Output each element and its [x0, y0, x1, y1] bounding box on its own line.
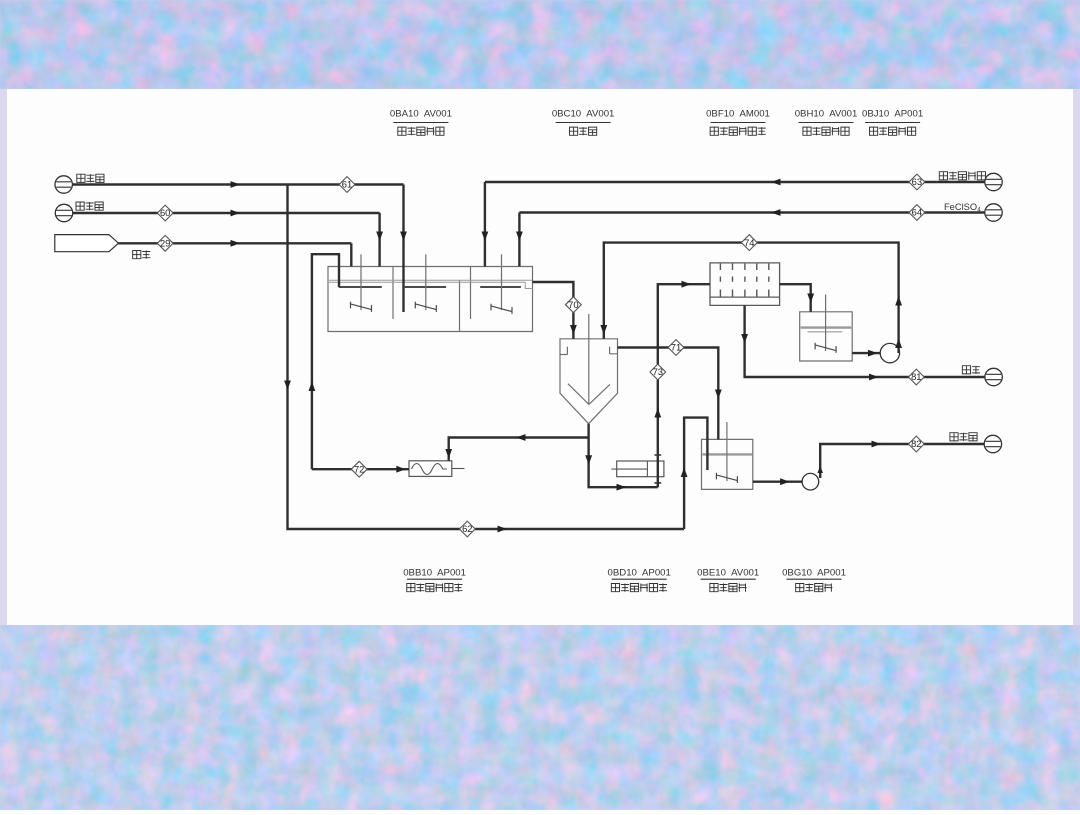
svg-text:62: 62 [462, 523, 472, 534]
svg-text:73: 73 [653, 366, 663, 377]
svg-text:FeClSO4: FeClSO4 [944, 202, 981, 214]
svg-text:60: 60 [160, 207, 170, 218]
svg-text:0BE10 AV001: 0BE10 AV001 [697, 567, 759, 578]
svg-text:64: 64 [912, 207, 922, 218]
svg-text:82: 82 [911, 438, 921, 449]
svg-text:0BJ10 AP001: 0BJ10 AP001 [862, 109, 923, 120]
svg-text:0BC10 AV001: 0BC10 AV001 [552, 109, 615, 120]
svg-text:0BB10 AP001: 0BB10 AP001 [403, 567, 466, 578]
svg-text:0BG10 AP001: 0BG10 AP001 [782, 567, 846, 578]
svg-text:81: 81 [911, 371, 921, 382]
svg-text:0BA10 AV001: 0BA10 AV001 [390, 109, 452, 120]
svg-text:0BF10 AM001: 0BF10 AM001 [706, 109, 770, 120]
svg-text:0BH10 AV001: 0BH10 AV001 [795, 109, 858, 120]
svg-text:63: 63 [912, 176, 922, 187]
svg-text:0BD10 AP001: 0BD10 AP001 [608, 567, 671, 578]
svg-text:70: 70 [568, 299, 578, 310]
svg-text:72: 72 [354, 463, 364, 474]
svg-text:74: 74 [744, 237, 754, 248]
svg-text:71: 71 [671, 342, 681, 353]
svg-text:61: 61 [342, 179, 352, 190]
svg-text:29: 29 [160, 238, 170, 249]
